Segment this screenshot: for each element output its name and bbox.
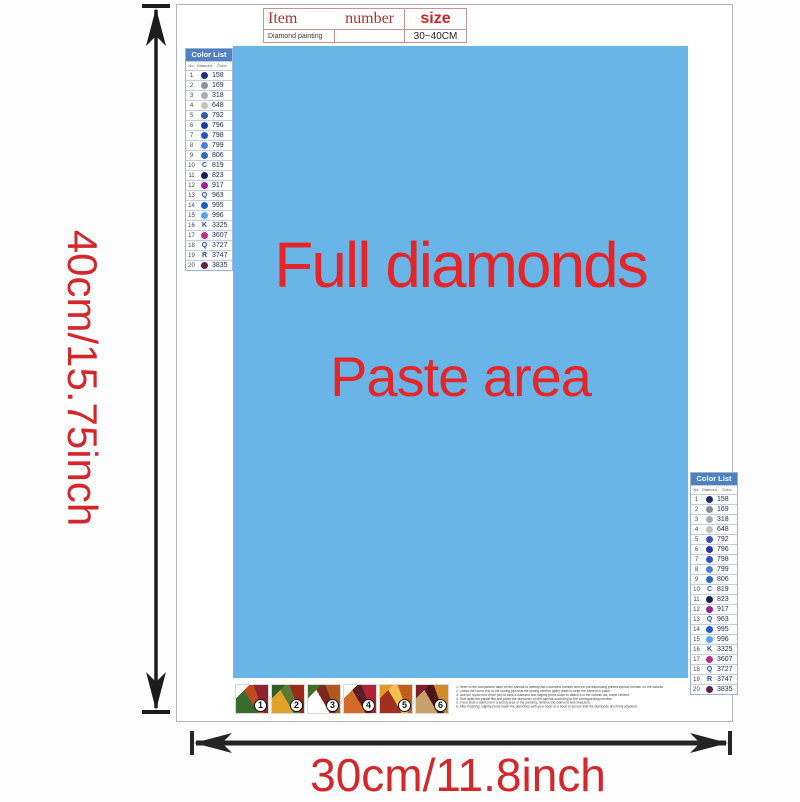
color-dot-icon <box>706 636 713 643</box>
color-list-row: 10C819 <box>691 584 737 594</box>
color-dot-icon <box>201 152 208 159</box>
color-number: 19 <box>691 677 702 683</box>
diamond-symbol-icon <box>702 496 717 503</box>
color-dot-icon <box>706 656 713 663</box>
symbol-letter: K <box>202 222 207 229</box>
symbol-letter: R <box>707 676 712 683</box>
col-color: Color <box>212 62 232 70</box>
color-list-row: 18Q3727 <box>186 240 232 250</box>
diamond-symbol-icon: Q <box>702 616 717 623</box>
color-dot-icon <box>706 576 713 583</box>
color-number: 20 <box>186 263 197 269</box>
color-list-row: 3318 <box>691 514 737 524</box>
color-list-left: Color List No. Diamond Color 11582169331… <box>185 48 233 271</box>
paste-area: Full diamonds Paste area <box>233 46 688 678</box>
diamond-symbol-icon <box>197 72 212 79</box>
dmc-color-code: 3747 <box>717 676 737 683</box>
dmc-color-code: 799 <box>212 142 232 149</box>
diamond-symbol-icon <box>702 536 717 543</box>
spec-value-item: Diamond painting <box>264 30 335 43</box>
color-number: 18 <box>186 243 197 249</box>
diamond-symbol-icon: K <box>702 646 717 653</box>
step-thumbnails: 123456 <box>235 684 449 714</box>
dmc-color-code: 963 <box>717 616 737 623</box>
color-list-row: 1158 <box>186 70 232 80</box>
color-number: 10 <box>186 163 197 169</box>
color-number: 13 <box>691 617 702 623</box>
color-list-row: 14995 <box>691 624 737 634</box>
color-list-row: 8799 <box>691 564 737 574</box>
color-number: 2 <box>691 507 702 513</box>
diamond-symbol-icon <box>702 526 717 533</box>
color-list-row: 15996 <box>186 210 232 220</box>
diamond-symbol-icon <box>197 112 212 119</box>
dmc-color-code: 796 <box>212 122 232 129</box>
color-list-title: Color List <box>691 473 737 485</box>
step-thumbnail-image: 2 <box>271 684 305 714</box>
diamond-symbol-icon <box>702 606 717 613</box>
color-dot-icon <box>706 526 713 533</box>
color-dot-icon <box>201 172 208 179</box>
symbol-letter: Q <box>202 192 207 199</box>
diamond-symbol-icon <box>702 576 717 583</box>
color-dot-icon <box>706 536 713 543</box>
color-list-row: 7798 <box>186 130 232 140</box>
color-dot-icon <box>201 112 208 119</box>
spec-value-number <box>334 30 405 43</box>
height-dimension-arrow <box>139 0 173 724</box>
dmc-color-code: 996 <box>717 636 737 643</box>
diamond-symbol-icon <box>197 212 212 219</box>
diamond-symbol-icon <box>702 546 717 553</box>
color-number: 11 <box>691 597 702 603</box>
color-dot-icon <box>201 212 208 219</box>
color-list-row: 4648 <box>186 100 232 110</box>
color-dot-icon <box>201 142 208 149</box>
color-list-row: 6796 <box>691 544 737 554</box>
color-dot-icon <box>706 506 713 513</box>
color-number: 7 <box>186 133 197 139</box>
diamond-symbol-icon <box>702 636 717 643</box>
color-number: 4 <box>691 527 702 533</box>
dmc-color-code: 158 <box>212 72 232 79</box>
step-number-badge: 5 <box>398 699 411 712</box>
color-number: 1 <box>691 497 702 503</box>
diamond-symbol-icon <box>197 82 212 89</box>
color-number: 5 <box>186 113 197 119</box>
color-number: 3 <box>186 93 197 99</box>
dmc-color-code: 3727 <box>212 242 232 249</box>
step-thumbnail-image: 6 <box>415 684 449 714</box>
color-dot-icon <box>201 92 208 99</box>
color-dot-icon <box>201 182 208 189</box>
color-number: 13 <box>186 193 197 199</box>
color-list-row: 16K3325 <box>186 220 232 230</box>
dmc-color-code: 158 <box>717 496 737 503</box>
step-number-badge: 6 <box>434 699 447 712</box>
color-dot-icon <box>201 82 208 89</box>
step-thumbnail-image: 3 <box>307 684 341 714</box>
color-dot-icon <box>201 72 208 79</box>
color-list-row: 5792 <box>691 534 737 544</box>
diamond-symbol-icon <box>197 182 212 189</box>
dmc-color-code: 3325 <box>717 646 737 653</box>
spec-value-size: 30~40CM <box>405 30 467 43</box>
diamond-symbol-icon: R <box>197 252 212 259</box>
color-number: 8 <box>186 143 197 149</box>
dmc-color-code: 823 <box>212 172 232 179</box>
diamond-symbol-icon <box>702 506 717 513</box>
dmc-color-code: 3835 <box>717 686 737 693</box>
color-list-row: 1158 <box>691 494 737 504</box>
instruction-line: 6. After finishing, slightly press down … <box>456 705 704 709</box>
dmc-color-code: 798 <box>212 132 232 139</box>
spec-header-number: number <box>345 10 400 28</box>
diamond-symbol-icon: Q <box>702 666 717 673</box>
instruction-text: 1. Refer to the comparison table on the … <box>456 686 704 709</box>
color-list-row: 11823 <box>186 170 232 180</box>
color-number: 4 <box>186 103 197 109</box>
color-dot-icon <box>706 626 713 633</box>
diamond-symbol-icon: K <box>197 222 212 229</box>
dmc-color-code: 823 <box>717 596 737 603</box>
color-number: 18 <box>691 667 702 673</box>
color-number: 5 <box>691 537 702 543</box>
dmc-color-code: 3747 <box>212 252 232 259</box>
color-dot-icon <box>201 122 208 129</box>
step-number-badge: 2 <box>290 699 303 712</box>
spec-table-header-row: Item number size <box>264 9 467 30</box>
color-dot-icon <box>706 566 713 573</box>
dmc-color-code: 995 <box>717 626 737 633</box>
color-number: 1 <box>186 73 197 79</box>
color-dot-icon <box>201 262 208 269</box>
color-number: 14 <box>186 203 197 209</box>
symbol-letter: Q <box>707 616 712 623</box>
color-list-row: 15996 <box>691 634 737 644</box>
symbol-letter: K <box>707 646 712 653</box>
dmc-color-code: 819 <box>212 162 232 169</box>
diamond-symbol-icon <box>197 262 212 269</box>
dmc-color-code: 792 <box>717 536 737 543</box>
color-dot-icon <box>706 596 713 603</box>
symbol-letter: C <box>202 162 207 169</box>
color-list-row: 13Q963 <box>186 190 232 200</box>
color-number: 17 <box>691 657 702 663</box>
dmc-color-code: 169 <box>717 506 737 513</box>
col-diamond: Diamond <box>197 62 212 70</box>
color-list-row: 9806 <box>186 150 232 160</box>
dmc-color-code: 796 <box>717 546 737 553</box>
height-dimension-label: 40cm/15.75inch <box>58 230 106 527</box>
dmc-color-code: 806 <box>212 152 232 159</box>
dmc-color-code: 3727 <box>717 666 737 673</box>
diamond-symbol-icon <box>197 142 212 149</box>
color-list-row: 18Q3727 <box>691 664 737 674</box>
color-list-column-headers: No. Diamond Color <box>186 61 232 70</box>
spec-table-data-row: Diamond painting 30~40CM <box>264 30 467 43</box>
color-dot-icon <box>201 202 208 209</box>
diamond-symbol-icon: R <box>702 676 717 683</box>
dmc-color-code: 318 <box>212 92 232 99</box>
color-list-row: 11823 <box>691 594 737 604</box>
diamond-symbol-icon <box>702 626 717 633</box>
diamond-symbol-icon: C <box>197 162 212 169</box>
dmc-color-code: 3325 <box>212 222 232 229</box>
color-number: 15 <box>186 213 197 219</box>
col-no: No. <box>691 486 702 494</box>
step-thumbnail-image: 5 <box>379 684 413 714</box>
spec-table: Item number size Diamond painting 30~40C… <box>263 8 467 43</box>
dmc-color-code: 995 <box>212 202 232 209</box>
product-spec-image: { "theme": { "paste_bg": "#6ab5e7", "acc… <box>0 0 800 800</box>
symbol-letter: Q <box>202 242 207 249</box>
dmc-color-code: 819 <box>717 586 737 593</box>
dmc-color-code: 3607 <box>212 232 232 239</box>
dmc-color-code: 169 <box>212 82 232 89</box>
color-number: 12 <box>691 607 702 613</box>
color-list-row: 13Q963 <box>691 614 737 624</box>
diamond-symbol-icon <box>197 202 212 209</box>
diamond-symbol-icon <box>702 566 717 573</box>
color-number: 8 <box>691 567 702 573</box>
diamond-symbol-icon <box>197 122 212 129</box>
diamond-symbol-icon <box>197 172 212 179</box>
col-diamond: Diamond <box>702 486 717 494</box>
color-number: 2 <box>186 83 197 89</box>
color-number: 9 <box>186 153 197 159</box>
diamond-symbol-icon: Q <box>197 192 212 199</box>
color-number: 10 <box>691 587 702 593</box>
color-list-row: 7798 <box>691 554 737 564</box>
diamond-symbol-icon: C <box>702 586 717 593</box>
color-number: 9 <box>691 577 702 583</box>
color-dot-icon <box>706 546 713 553</box>
color-number: 14 <box>691 627 702 633</box>
step-thumbnail-image: 4 <box>343 684 377 714</box>
dmc-color-code: 799 <box>717 566 737 573</box>
color-list-row: 14995 <box>186 200 232 210</box>
color-list-row: 4648 <box>691 524 737 534</box>
diamond-symbol-icon <box>702 516 717 523</box>
spec-header-size: size <box>405 9 467 30</box>
spec-header-item: Item <box>268 10 297 28</box>
diamond-symbol-icon <box>702 556 717 563</box>
color-number: 19 <box>186 253 197 259</box>
color-number: 11 <box>186 173 197 179</box>
color-list-row: 2169 <box>691 504 737 514</box>
color-number: 3 <box>691 517 702 523</box>
diamond-symbol-icon <box>702 596 717 603</box>
diamond-symbol-icon <box>702 686 717 693</box>
color-number: 6 <box>691 547 702 553</box>
color-list-row: 6796 <box>186 120 232 130</box>
step-number-badge: 4 <box>362 699 375 712</box>
dmc-color-code: 648 <box>717 526 737 533</box>
color-list-row: 16K3325 <box>691 644 737 654</box>
dmc-color-code: 798 <box>717 556 737 563</box>
color-dot-icon <box>201 132 208 139</box>
color-list-row: 173607 <box>691 654 737 664</box>
diamond-symbol-icon: Q <box>197 242 212 249</box>
dmc-color-code: 792 <box>212 112 232 119</box>
color-list-row: 8799 <box>186 140 232 150</box>
color-list-row: 10C819 <box>186 160 232 170</box>
color-dot-icon <box>201 232 208 239</box>
dmc-color-code: 3835 <box>212 262 232 269</box>
color-number: 15 <box>691 637 702 643</box>
dmc-color-code: 996 <box>212 212 232 219</box>
step-number-badge: 1 <box>254 699 267 712</box>
color-list-row: 19R3747 <box>691 674 737 684</box>
dmc-color-code: 318 <box>717 516 737 523</box>
diamond-symbol-icon <box>702 656 717 663</box>
color-dot-icon <box>706 606 713 613</box>
paste-area-title: Full diamonds <box>233 228 688 302</box>
color-dot-icon <box>706 496 713 503</box>
dmc-color-code: 648 <box>212 102 232 109</box>
symbol-letter: R <box>202 252 207 259</box>
color-list-row: 12917 <box>691 604 737 614</box>
dmc-color-code: 3607 <box>717 656 737 663</box>
color-list-rows: 11582169331846485792679677988799980610C8… <box>691 494 737 694</box>
dmc-color-code: 917 <box>717 606 737 613</box>
symbol-letter: C <box>707 586 712 593</box>
color-list-row: 173607 <box>186 230 232 240</box>
color-list-row: 203835 <box>186 260 232 270</box>
diamond-symbol-icon <box>197 232 212 239</box>
color-list-row: 12917 <box>186 180 232 190</box>
color-number: 7 <box>691 557 702 563</box>
paste-area-subtitle: Paste area <box>233 344 688 409</box>
diamond-symbol-icon <box>197 102 212 109</box>
col-no: No. <box>186 62 197 70</box>
color-number: 17 <box>186 233 197 239</box>
dmc-color-code: 806 <box>717 576 737 583</box>
color-list-row: 19R3747 <box>186 250 232 260</box>
color-list-column-headers: No. Diamond Color <box>691 485 737 494</box>
color-number: 16 <box>186 223 197 229</box>
dmc-color-code: 917 <box>212 182 232 189</box>
diamond-symbol-icon <box>197 92 212 99</box>
color-dot-icon <box>706 516 713 523</box>
width-dimension-label: 30cm/11.8inch <box>310 748 606 802</box>
color-list-row: 2169 <box>186 80 232 90</box>
color-list-row: 5792 <box>186 110 232 120</box>
color-number: 16 <box>691 647 702 653</box>
step-thumbnail-image: 1 <box>235 684 269 714</box>
diamond-symbol-icon <box>197 132 212 139</box>
color-list-right: Color List No. Diamond Color 11582169331… <box>690 472 738 695</box>
color-list-title: Color List <box>186 49 232 61</box>
color-number: 12 <box>186 183 197 189</box>
color-dot-icon <box>706 686 713 693</box>
color-dot-icon <box>201 102 208 109</box>
color-list-row: 9806 <box>691 574 737 584</box>
dmc-color-code: 963 <box>212 192 232 199</box>
color-list-rows: 11582169331846485792679677988799980610C8… <box>186 70 232 270</box>
color-number: 6 <box>186 123 197 129</box>
color-dot-icon <box>706 556 713 563</box>
diamond-symbol-icon <box>197 152 212 159</box>
col-color: Color <box>717 486 737 494</box>
step-number-badge: 3 <box>326 699 339 712</box>
color-list-row: 3318 <box>186 90 232 100</box>
symbol-letter: Q <box>707 666 712 673</box>
